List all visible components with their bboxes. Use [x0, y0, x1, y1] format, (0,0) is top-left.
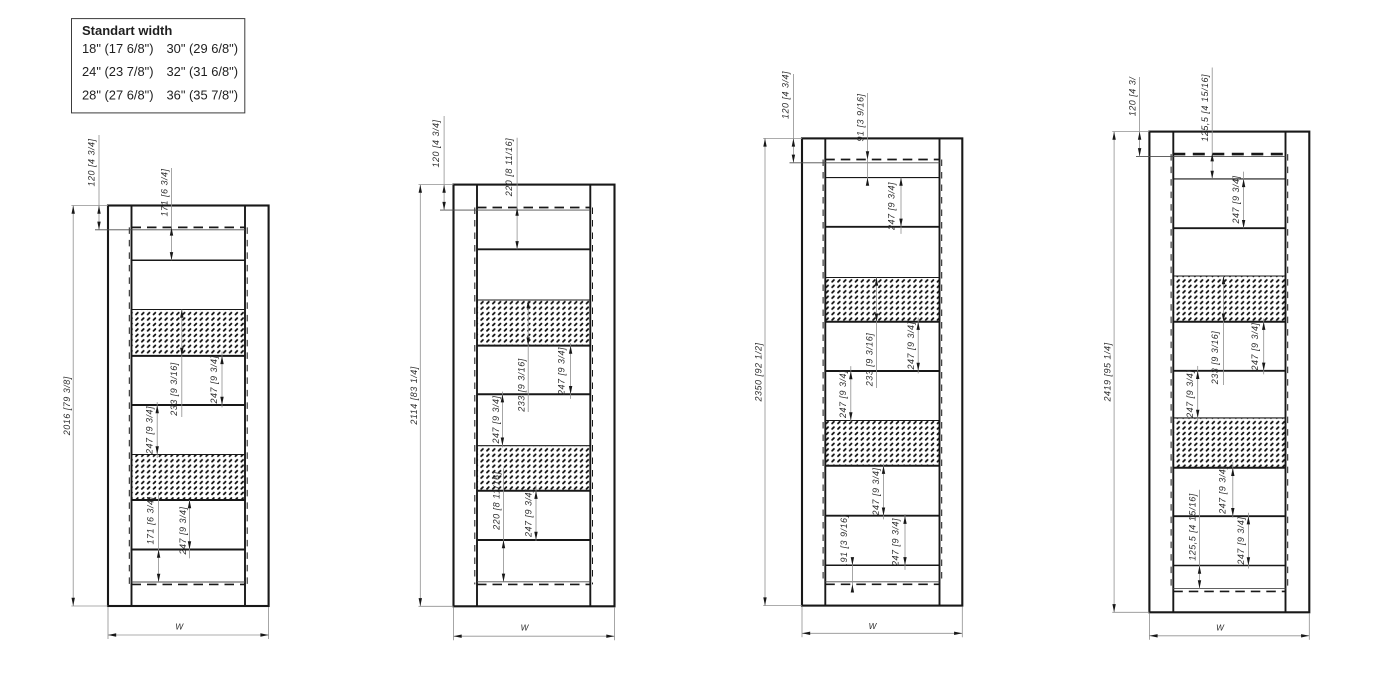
- svg-text:247 [9 3/4]: 247 [9 3/4]: [209, 355, 219, 404]
- svg-text:2419 [95 1/4]: 2419 [95 1/4]: [1103, 342, 1113, 402]
- svg-text:233 [9 3/16]: 233 [9 3/16]: [169, 362, 179, 417]
- svg-text:233 [9 3/16]: 233 [9 3/16]: [1210, 331, 1220, 386]
- svg-text:247 [9 3/4]: 247 [9 3/4]: [906, 321, 916, 370]
- svg-text:171 [6 3/4]: 171 [6 3/4]: [159, 168, 169, 216]
- svg-text:W: W: [1216, 623, 1225, 632]
- svg-text:120 [4 3/4]: 120 [4 3/4]: [431, 119, 441, 167]
- svg-text:233 [9 3/16]: 233 [9 3/16]: [517, 358, 527, 413]
- svg-text:36" (35 7/8"): 36" (35 7/8"): [167, 87, 239, 102]
- svg-text:W: W: [521, 624, 530, 633]
- svg-text:.91 [3 9/16]: .91 [3 9/16]: [839, 514, 849, 565]
- svg-text:125,5 [4 15/16]: 125,5 [4 15/16]: [1187, 493, 1197, 561]
- svg-text:247 [9 3/4]: 247 [9 3/4]: [145, 406, 155, 455]
- svg-text:91 [3 9/16]: 91 [3 9/16]: [856, 93, 866, 141]
- svg-text:247 [9 3/4]: 247 [9 3/4]: [1250, 322, 1260, 371]
- svg-text:Standart width: Standart width: [82, 23, 172, 38]
- svg-text:220 [8 11/16]: 220 [8 11/16]: [491, 472, 501, 531]
- svg-text:W: W: [175, 622, 184, 631]
- svg-text:32" (31 6/8"): 32" (31 6/8"): [167, 64, 239, 79]
- svg-text:247 [9 3/4]: 247 [9 3/4]: [891, 518, 901, 567]
- svg-text:2350 [92 1/2]: 2350 [92 1/2]: [754, 342, 764, 402]
- svg-text:W: W: [869, 622, 878, 631]
- svg-text:171 [6 3/4]: 171 [6 3/4]: [145, 496, 155, 544]
- svg-text:247 [9 3/4]: 247 [9 3/4]: [556, 347, 566, 396]
- svg-text:24" (23 7/8"): 24" (23 7/8"): [82, 64, 154, 79]
- svg-text:2114 [83 1/4]: 2114 [83 1/4]: [409, 366, 419, 425]
- svg-text:247 [9 3/4]: 247 [9 3/4]: [178, 506, 188, 555]
- svg-text:120 [4 3/: 120 [4 3/: [1127, 76, 1137, 117]
- svg-text:247 [9 3/4]: 247 [9 3/4]: [1231, 175, 1241, 224]
- svg-text:247 [9 3/4]: 247 [9 3/4]: [491, 395, 501, 444]
- svg-text:247 [9 3/4]: 247 [9 3/4]: [1218, 466, 1228, 515]
- svg-text:247 [9 3/4]: 247 [9 3/4]: [838, 370, 848, 419]
- svg-text:247 [9 3/4]: 247 [9 3/4]: [1236, 517, 1246, 566]
- svg-text:220 [8 11/16]: 220 [8 11/16]: [504, 138, 514, 197]
- svg-text:18" (17 6/8"): 18" (17 6/8"): [82, 41, 154, 56]
- svg-text:30" (29 6/8"): 30" (29 6/8"): [167, 41, 239, 56]
- svg-text:120 [4 3/4]: 120 [4 3/4]: [86, 138, 96, 186]
- svg-text:233 [9 3/16]: 233 [9 3/16]: [865, 333, 875, 388]
- svg-text:28" (27 6/8"): 28" (27 6/8"): [82, 87, 154, 102]
- svg-text:247 [9 3/4]: 247 [9 3/4]: [886, 182, 896, 231]
- svg-text:247 [9 3/4]: 247 [9 3/4]: [1185, 370, 1195, 419]
- svg-text:247 [9 3/4]: 247 [9 3/4]: [871, 467, 881, 516]
- svg-text:2016 [79 3/8]: 2016 [79 3/8]: [62, 376, 72, 436]
- svg-text:120 [4 3/4]: 120 [4 3/4]: [781, 71, 791, 119]
- svg-text:247 [9 3/4]: 247 [9 3/4]: [524, 489, 534, 538]
- svg-text:125,5 [4 15/16]: 125,5 [4 15/16]: [1200, 74, 1210, 142]
